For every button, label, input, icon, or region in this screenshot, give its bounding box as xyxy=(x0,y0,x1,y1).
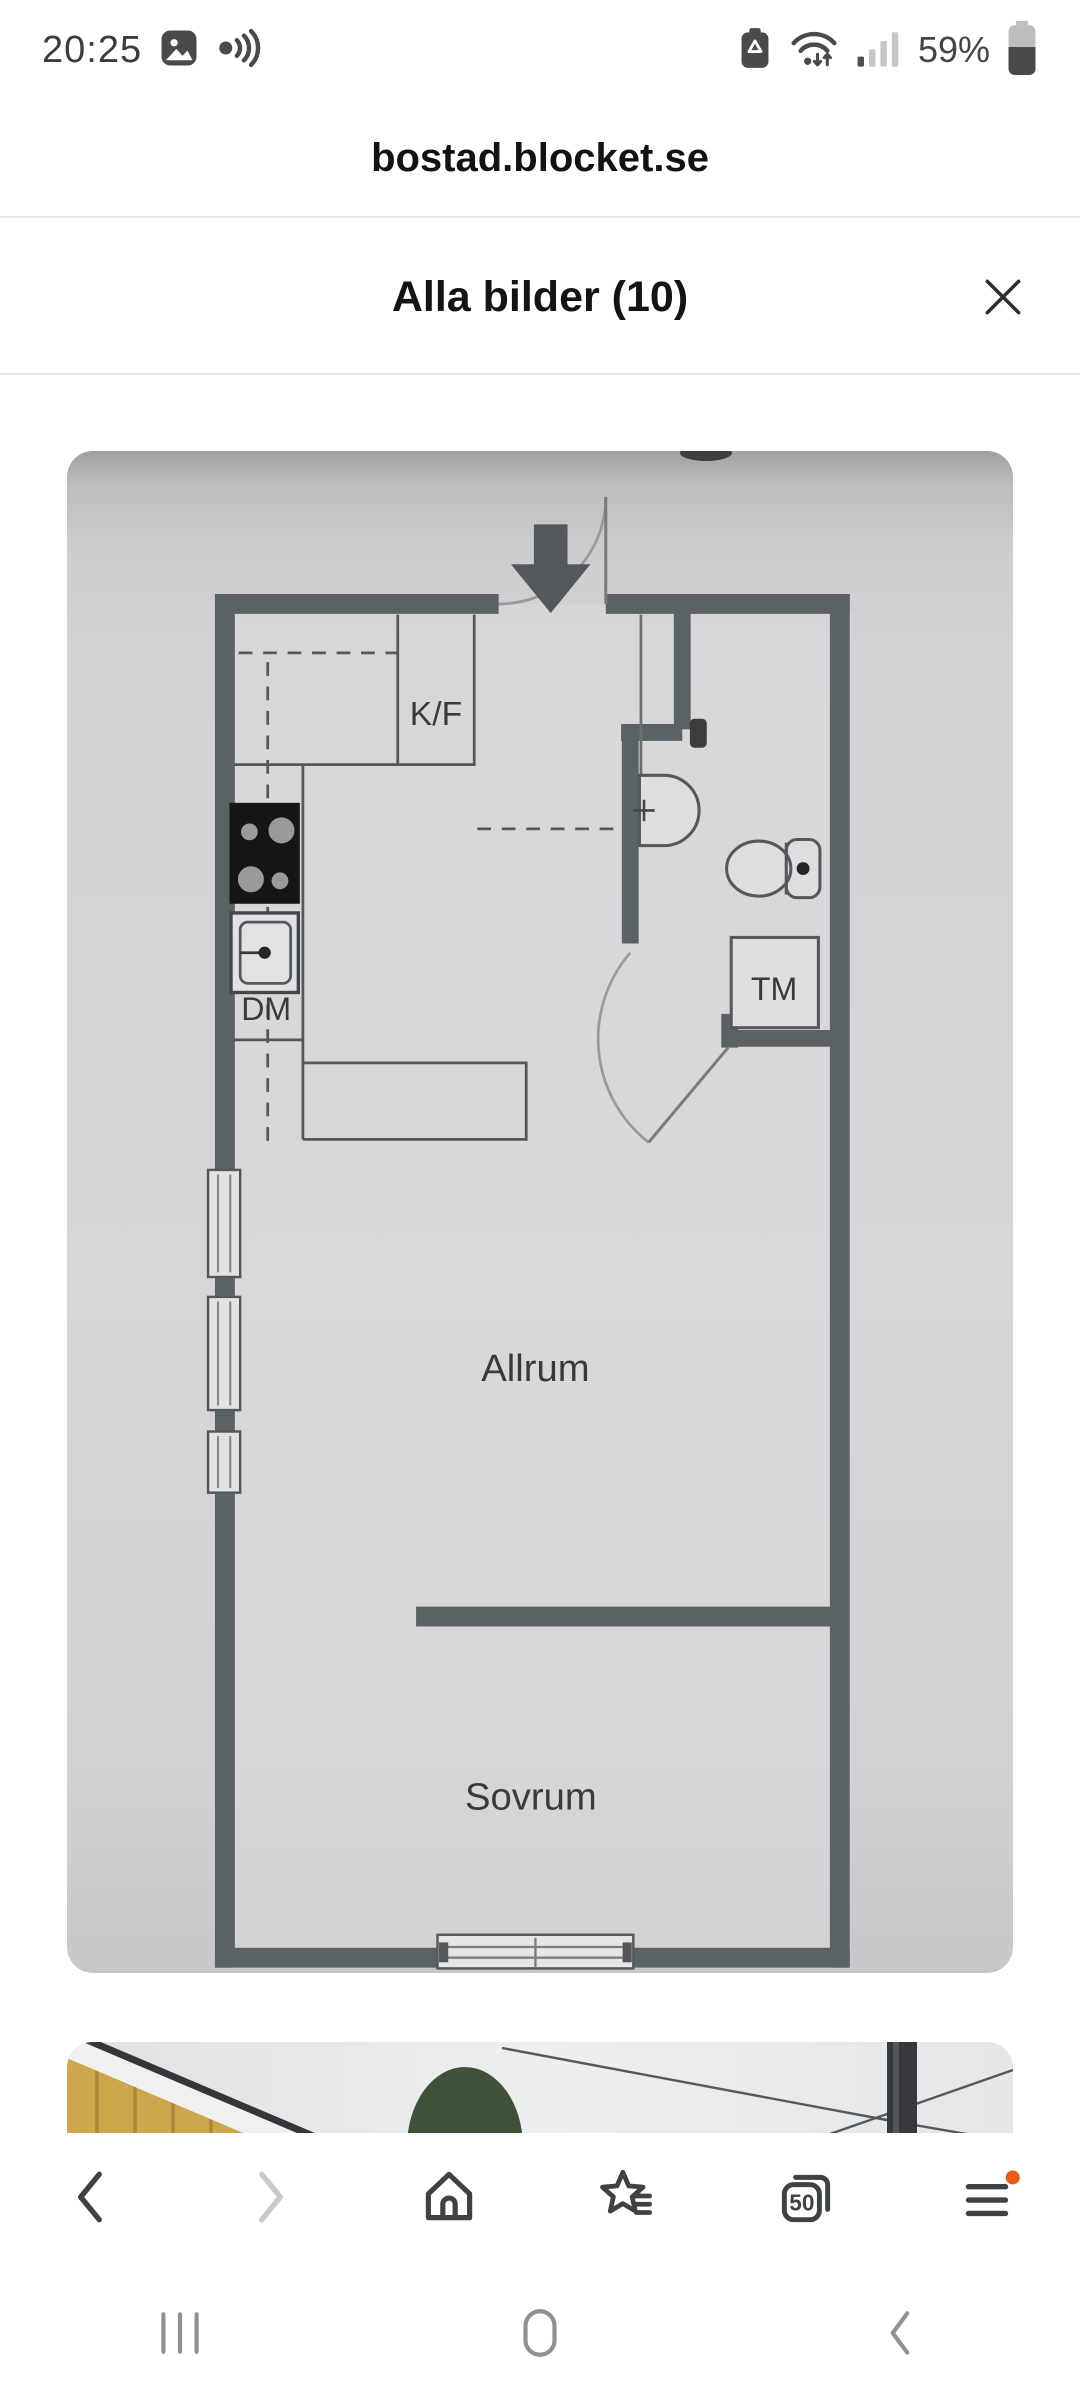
bookmarks-icon[interactable] xyxy=(594,2164,660,2235)
home-pill-icon[interactable] xyxy=(360,2304,720,2362)
label-allrum: Allrum xyxy=(481,1347,589,1390)
battery-percent: 59% xyxy=(918,29,990,71)
tab-count: 50 xyxy=(789,2189,814,2215)
wifi-arrows-icon xyxy=(788,27,840,74)
label-sovrum: Sovrum xyxy=(465,1775,597,1818)
url-bar[interactable]: bostad.blocket.se xyxy=(0,100,1080,218)
system-navigation-bar xyxy=(0,2265,1080,2400)
back-chevron-icon[interactable] xyxy=(720,2304,1080,2362)
bottom-window xyxy=(438,1935,634,1969)
recents-icon[interactable] xyxy=(0,2304,360,2362)
back-icon[interactable] xyxy=(58,2164,124,2235)
close-icon[interactable] xyxy=(978,272,1028,327)
sound-wave-icon xyxy=(216,28,268,73)
url-text[interactable]: bostad.blocket.se xyxy=(0,136,1080,181)
forward-icon[interactable] xyxy=(237,2164,303,2235)
floor-plan-image[interactable]: K/F DM TM Allrum Sovrum xyxy=(67,451,1013,1973)
floor-area xyxy=(225,604,840,1958)
stove xyxy=(229,803,299,904)
toilet xyxy=(727,840,820,898)
browser-toolbar: 50 xyxy=(0,2133,1080,2265)
signal-bars-icon xyxy=(856,28,902,73)
home-icon[interactable] xyxy=(416,2164,482,2235)
sink xyxy=(231,913,298,993)
clock: 20:25 xyxy=(42,29,142,72)
left-windows xyxy=(208,1170,240,1493)
label-tm: TM xyxy=(751,971,797,1007)
menu-icon[interactable] xyxy=(952,2164,1022,2235)
gallery-icon xyxy=(158,27,200,74)
label-dm: DM xyxy=(241,991,291,1027)
floor-plan-drawing: K/F DM TM Allrum Sovrum xyxy=(67,451,1013,1973)
battery-icon xyxy=(1006,21,1038,80)
status-bar: 20:25 59% xyxy=(0,0,1080,100)
tabs-icon[interactable]: 50 xyxy=(773,2164,839,2235)
label-kf: K/F xyxy=(410,696,462,733)
notification-dot xyxy=(1006,2170,1020,2184)
gallery-title: Alla bilder (10) xyxy=(0,220,1080,375)
gallery-header: Alla bilder (10) xyxy=(0,220,1080,375)
battery-saver-icon xyxy=(738,28,772,73)
